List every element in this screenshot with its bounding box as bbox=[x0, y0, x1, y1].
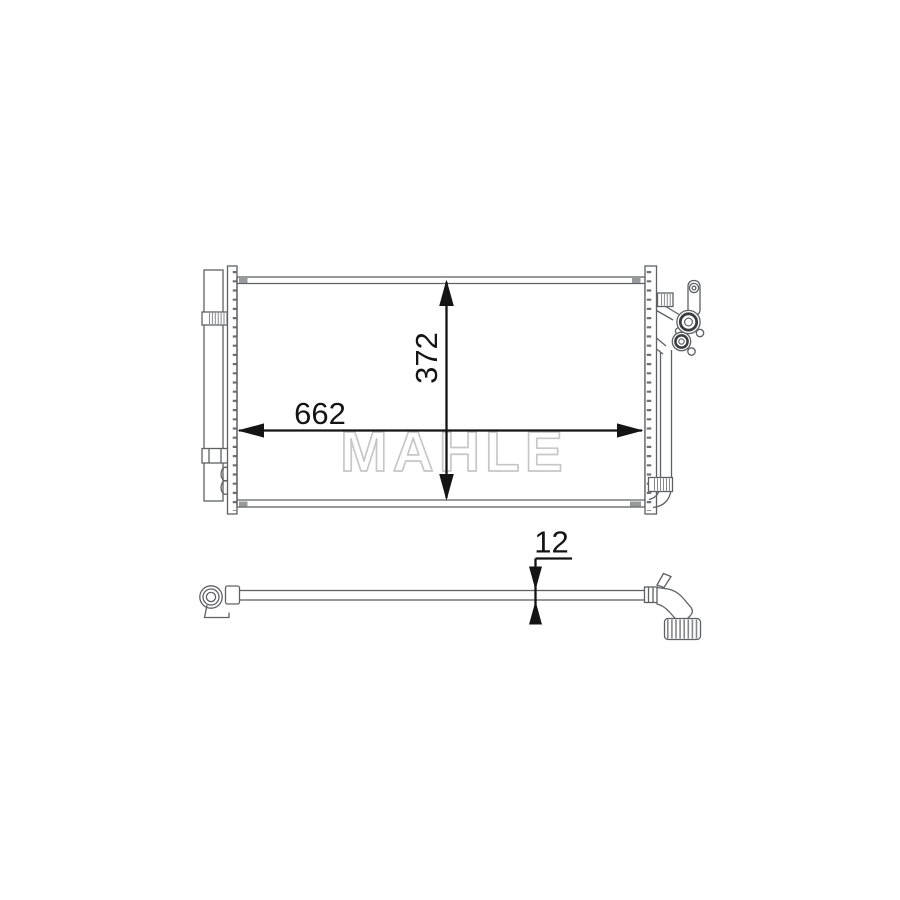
side-right-grooved-cap bbox=[665, 619, 701, 640]
pipe-mid-b bbox=[657, 349, 664, 354]
stub-top-right bbox=[632, 278, 641, 283]
dim-height-arrow-down bbox=[439, 474, 454, 501]
stub-bottom-right bbox=[630, 502, 641, 507]
right-header-tank bbox=[645, 266, 657, 514]
condenser-drawing: MAHLE 372 662 12 bbox=[0, 0, 900, 900]
side-right-endcap bbox=[645, 587, 658, 603]
left-lower-block bbox=[202, 449, 229, 464]
side-right-wing bbox=[657, 574, 671, 588]
left-header-outline bbox=[228, 266, 238, 514]
dim-width-arrow-right bbox=[617, 423, 644, 437]
pipe-mid-a bbox=[657, 338, 667, 346]
left-side-bracket bbox=[202, 270, 231, 501]
stub-bottom-left bbox=[239, 502, 248, 507]
dim-height-label: 372 bbox=[409, 332, 444, 384]
dim-depth-arrow-up bbox=[529, 601, 542, 625]
side-right-elbow bbox=[657, 588, 692, 623]
pipe-top-b bbox=[657, 311, 674, 321]
side-left-fitting bbox=[226, 586, 240, 604]
side-view bbox=[200, 574, 701, 640]
side-core-bar bbox=[238, 591, 650, 601]
technical-drawing-page: MAHLE 372 662 12 bbox=[0, 0, 900, 900]
bolt-hole-bottom bbox=[688, 348, 695, 355]
left-header-tank bbox=[228, 266, 238, 514]
stub-top-left bbox=[239, 278, 248, 283]
dim-depth-arrow-down bbox=[529, 567, 542, 591]
left-bracket-outline bbox=[204, 270, 223, 501]
bolt-hole-right bbox=[696, 329, 703, 336]
dimension-depth: 12 bbox=[529, 525, 572, 625]
dim-width-arrow-left bbox=[238, 423, 265, 437]
right-header-outline bbox=[645, 266, 657, 514]
dim-depth-label: 12 bbox=[534, 525, 568, 560]
dimension-width: 662 bbox=[238, 396, 644, 438]
dim-width-label: 662 bbox=[294, 396, 346, 431]
